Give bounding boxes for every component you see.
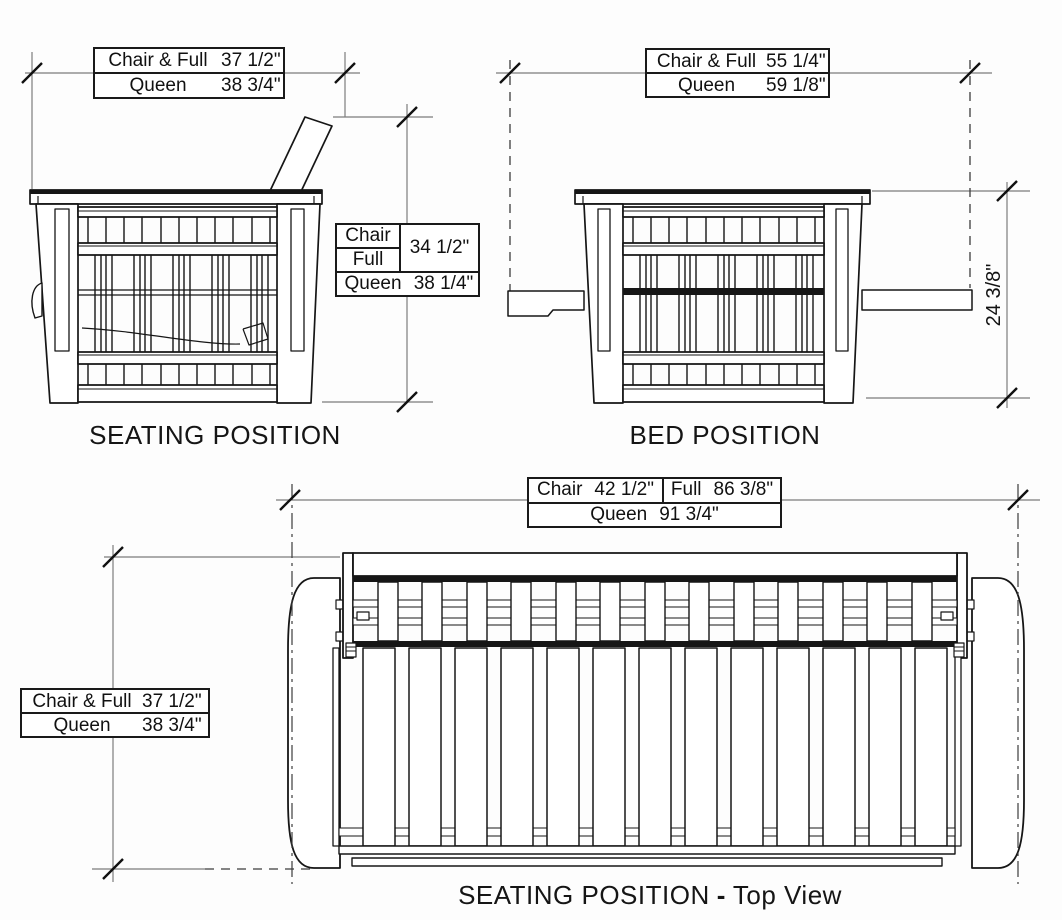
table-row: Queen 38 3/4" [22, 712, 208, 736]
table-row: Queen 38 3/4" [95, 72, 283, 97]
bed-deck-band [623, 288, 824, 295]
caption-text: SEATING POSITION [458, 880, 710, 910]
dim-label: Chair & Full [22, 692, 142, 711]
dim-value: 55 1/4" [766, 52, 828, 71]
left-hinge-tab [357, 612, 369, 620]
backrest-slats [378, 582, 932, 641]
topview-width-table: Chair 42 1/2" Full 86 3/8" Queen 91 3/4" [527, 477, 782, 528]
dim-value: 38 1/4" [409, 273, 478, 295]
dim-label: Chair [337, 225, 401, 249]
caption-text: SEATING POSITION [89, 420, 341, 450]
seating-caption: SEATING POSITION [60, 420, 370, 451]
dim-value: 91 3/4" [659, 504, 719, 526]
dim-value: 38 3/4" [142, 716, 208, 735]
dim-value: 59 1/8" [766, 76, 828, 95]
topview-depth-table: Chair & Full 37 1/2" Queen 38 3/4" [20, 688, 210, 738]
dim-label: Chair & Full [95, 51, 221, 70]
dim-label: Queen [647, 76, 766, 95]
upper-slats [633, 217, 815, 243]
dim-label: Queen [22, 716, 142, 735]
bed-width-table: Chair & Full 55 1/4" Queen 59 1/8" [645, 48, 830, 98]
left-end-stile [343, 553, 353, 658]
technical-drawing [0, 0, 1062, 920]
top-view-drawing [288, 553, 1024, 868]
bed-deck-left [508, 291, 584, 316]
dim-label: Queen [337, 273, 409, 295]
right-hinge-tab [941, 612, 953, 620]
bed-deck-right [862, 290, 972, 310]
topview-caption: SEATING POSITION-Top View [430, 880, 870, 911]
caption-dash: - [717, 880, 726, 910]
table-row: Queen 38 1/4" [337, 271, 478, 295]
dim-label: Chair & Full [647, 52, 766, 71]
table-row: Chair 42 1/2" Full 86 3/8" [529, 479, 780, 502]
dim-cell: Full 86 3/8" [664, 479, 780, 502]
table-row: Queen 91 3/4" [529, 502, 780, 527]
table-row: Queen 59 1/8" [647, 72, 828, 96]
lower-slats [633, 364, 815, 385]
dim-label: Full [337, 249, 401, 271]
dim-value: 34 1/2" [401, 225, 478, 271]
tall-slats [640, 255, 813, 352]
dim-label: Full [671, 479, 702, 501]
seating-height-table: Chair 34 1/2" Full Queen 38 1/4" [335, 223, 480, 297]
right-arm [972, 578, 1024, 868]
futon-dimension-drawing: Chair & Full 37 1/2" Queen 38 3/4" Chair… [0, 0, 1062, 920]
left-arm [288, 578, 340, 868]
dim-value: 37 1/2" [142, 692, 208, 711]
bed-position-drawing [508, 190, 972, 403]
right-end-stile [957, 553, 967, 658]
dim-value: 42 1/2" [594, 479, 654, 501]
dim-value: 38 3/4" [221, 76, 283, 95]
table-row: Chair & Full 37 1/2" [22, 690, 208, 712]
table-row: Chair & Full 37 1/2" [95, 49, 283, 72]
tall-slats [95, 255, 268, 352]
bed-height-dim-label: 24 3/8" [983, 239, 1005, 351]
caption-text: BED POSITION [630, 420, 821, 450]
release-lever [32, 283, 42, 318]
upper-slats [88, 217, 270, 243]
lower-slats [88, 364, 270, 385]
dim-label: Queen [590, 504, 647, 526]
backrest [270, 117, 332, 200]
seating-width-table: Chair & Full 37 1/2" Queen 38 3/4" [93, 47, 285, 99]
seat-slats [363, 648, 947, 846]
back-top-rail [353, 553, 957, 576]
dim-cell: Chair 42 1/2" [529, 479, 664, 502]
dim-value: 86 3/8" [714, 479, 774, 501]
caption-suffix: Top View [733, 880, 842, 910]
mattress-deck-curves [82, 323, 268, 345]
table-row: Chair & Full 55 1/4" [647, 50, 828, 72]
dim-label: Chair [537, 479, 582, 501]
seating-position-drawing [30, 117, 332, 403]
dim-label: Queen [95, 76, 221, 95]
dim-value: 37 1/2" [221, 51, 283, 70]
seat-front-rail [339, 846, 955, 854]
bed-caption: BED POSITION [575, 420, 875, 451]
